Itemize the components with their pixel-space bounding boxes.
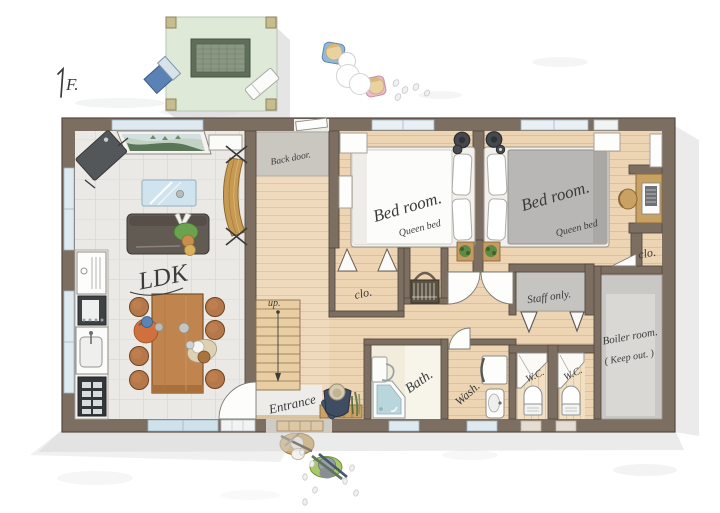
svg-text:up.: up.	[268, 298, 281, 309]
svg-text:F.: F.	[65, 75, 78, 94]
